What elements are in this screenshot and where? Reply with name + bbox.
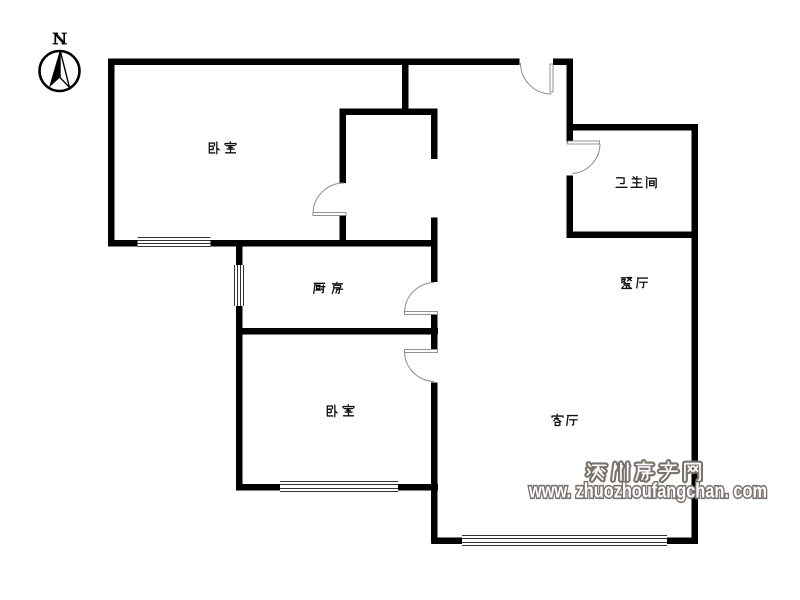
svg-text:www. zhuozhoufangchan. com: www. zhuozhoufangchan. com — [528, 481, 767, 503]
